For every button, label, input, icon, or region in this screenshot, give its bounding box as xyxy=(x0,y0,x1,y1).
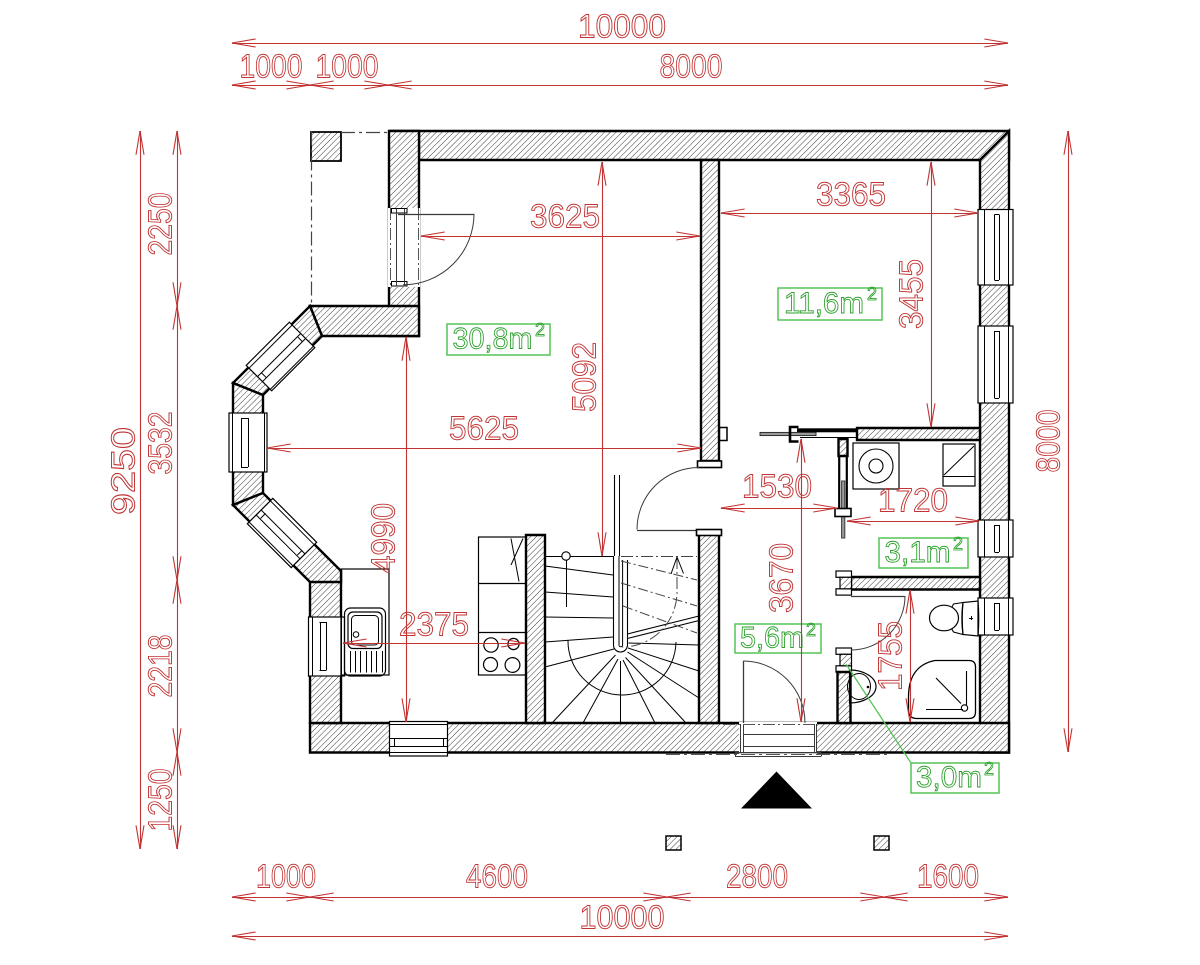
svg-text:2800: 2800 xyxy=(726,858,788,895)
svg-text:3625: 3625 xyxy=(530,198,600,235)
svg-text:10000: 10000 xyxy=(578,8,666,45)
svg-text:4600: 4600 xyxy=(466,858,528,895)
svg-text:2: 2 xyxy=(984,759,994,779)
svg-text:5092: 5092 xyxy=(566,342,603,412)
svg-text:1755: 1755 xyxy=(872,621,909,691)
svg-text:2: 2 xyxy=(867,284,877,304)
svg-text:3670: 3670 xyxy=(763,543,800,613)
svg-text:3,1m: 3,1m xyxy=(885,536,951,569)
svg-text:10000: 10000 xyxy=(580,899,665,936)
svg-text:3455: 3455 xyxy=(893,259,930,329)
svg-text:1000: 1000 xyxy=(240,48,303,85)
svg-text:4990: 4990 xyxy=(365,503,402,573)
svg-text:2218: 2218 xyxy=(142,635,179,698)
svg-text:11,6m: 11,6m xyxy=(784,287,864,320)
svg-text:2250: 2250 xyxy=(142,193,179,256)
svg-text:2: 2 xyxy=(535,320,545,340)
svg-text:2375: 2375 xyxy=(399,606,469,643)
svg-text:8000: 8000 xyxy=(1030,410,1067,473)
svg-text:3532: 3532 xyxy=(142,412,179,475)
svg-text:3,0m: 3,0m xyxy=(916,761,982,794)
svg-text:8000: 8000 xyxy=(660,48,723,85)
svg-text:5625: 5625 xyxy=(449,410,519,447)
svg-text:1720: 1720 xyxy=(878,482,948,519)
svg-text:2: 2 xyxy=(953,534,963,554)
svg-text:30,8m: 30,8m xyxy=(453,322,533,355)
svg-text:1000: 1000 xyxy=(256,858,316,895)
svg-text:2: 2 xyxy=(806,620,816,640)
svg-text:9250: 9250 xyxy=(105,427,142,515)
svg-text:3365: 3365 xyxy=(816,176,886,213)
svg-text:1000: 1000 xyxy=(316,48,379,85)
svg-text:1600: 1600 xyxy=(917,858,979,895)
svg-text:5,6m: 5,6m xyxy=(740,621,804,654)
svg-text:1250: 1250 xyxy=(142,769,179,832)
